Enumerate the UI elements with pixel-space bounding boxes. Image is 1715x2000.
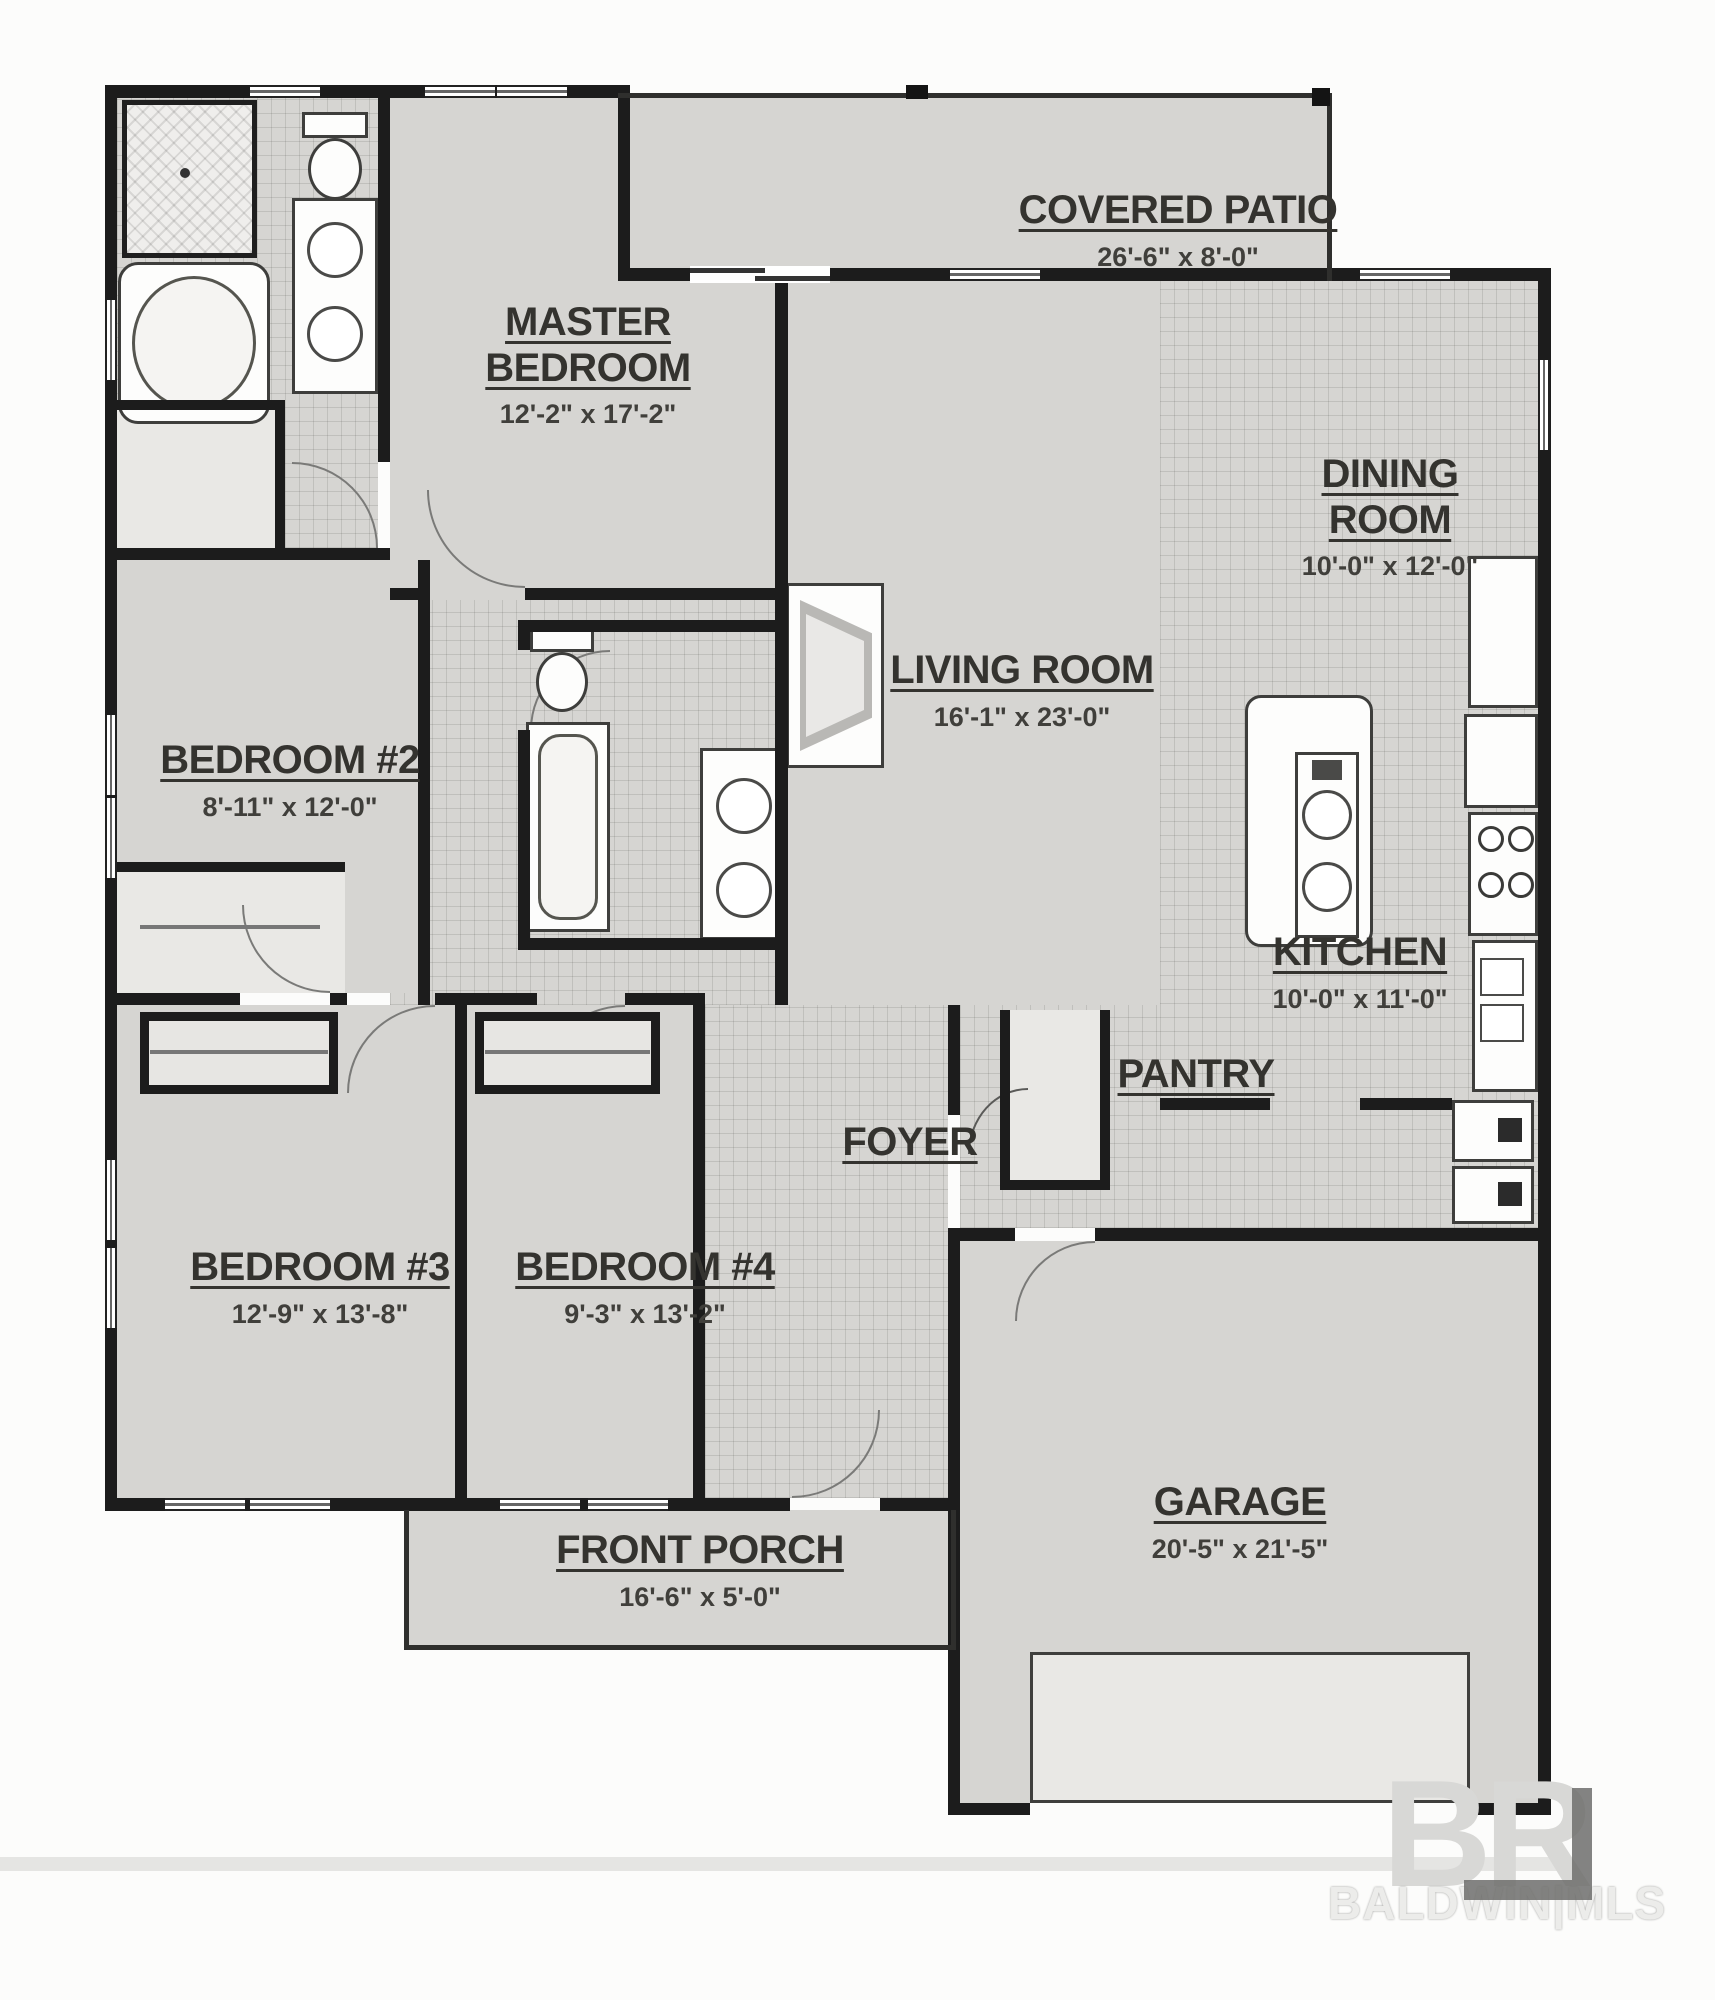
cooktop-burner — [1508, 826, 1534, 852]
fixture-toilet-bowl-master — [308, 138, 362, 200]
shower-drain — [180, 168, 190, 178]
wall-foyer-bottom-right — [880, 1498, 960, 1511]
room-dim: 8'-11" x 12'-0" — [80, 792, 500, 823]
window — [497, 85, 567, 98]
label-dining-room: DINING ROOM 10'-0" x 12'-0" — [1293, 452, 1488, 582]
room-dim: 16'-6" x 5'-0" — [490, 1582, 910, 1613]
wall-hallbath-left-b — [518, 730, 530, 950]
wall-bedrow-a — [105, 993, 240, 1005]
wall-bedrow-b — [330, 993, 347, 1005]
cooktop-burner — [1478, 826, 1504, 852]
label-pantry: PANTRY — [1066, 1052, 1326, 1098]
fixture-sink — [307, 306, 363, 362]
wall-master-bath-divide — [378, 85, 390, 462]
window — [105, 300, 117, 380]
window — [250, 85, 320, 98]
wall-master-closet-top — [112, 400, 285, 410]
label-bedroom2: BEDROOM #2 8'-11" x 12'-0" — [80, 738, 500, 823]
window — [105, 1160, 117, 1240]
window — [500, 1498, 580, 1511]
label-living-room: LIVING ROOM 16'-1" x 23'-0" — [812, 648, 1232, 733]
wall-hallbath-top — [518, 620, 788, 632]
room-master-closet — [117, 410, 275, 548]
wall-kitchen-bottom-a — [1160, 1098, 1270, 1110]
patio-slider-panel — [755, 276, 830, 281]
porch-edge-bottom — [404, 1645, 956, 1650]
wall-kitchen-bottom-b — [1360, 1098, 1452, 1110]
closet-rod — [485, 1050, 650, 1054]
room-dim: 12'-2" x 17'-2" — [471, 399, 706, 430]
label-foyer: FOYER — [790, 1120, 1030, 1166]
wall-hallbath-bottom — [518, 938, 788, 950]
fixture-shower — [122, 100, 257, 258]
window — [250, 1498, 330, 1511]
window — [1538, 360, 1550, 450]
closet-rod — [150, 1050, 328, 1054]
fixture-island-basin — [1302, 862, 1352, 912]
patio-slider-panel — [690, 268, 765, 273]
bathtub-inner — [538, 734, 598, 920]
fixture-sink — [716, 862, 772, 918]
room-dim: 9'-3" x 13'-2" — [435, 1299, 855, 1330]
room-name: PANTRY — [1118, 1052, 1275, 1096]
room-name: FRONT PORCH — [556, 1528, 844, 1572]
wall-pantry-right — [1100, 1010, 1110, 1190]
fixture-refrigerator — [1464, 714, 1538, 808]
patio-column — [1312, 88, 1330, 106]
cooktop-burner — [1508, 872, 1534, 898]
wall-master-closet-right — [275, 400, 285, 558]
label-kitchen: KITCHEN 10'-0" x 11'-0" — [1200, 930, 1520, 1015]
room-dim: 20'-5" x 21'-5" — [1080, 1534, 1400, 1565]
fixture-toilet-tank-master — [302, 112, 368, 138]
porch-edge-right — [951, 1510, 956, 1650]
window — [425, 85, 495, 98]
label-bedroom4: BEDROOM #4 9'-3" x 13'-2" — [435, 1245, 855, 1330]
wall-bedrow-d — [625, 993, 705, 1005]
room-name: MASTER BEDROOM — [485, 300, 690, 390]
page-bottom-edge — [0, 1857, 1570, 1871]
room-name: BEDROOM #2 — [160, 738, 420, 782]
closet-slider — [140, 925, 320, 929]
room-name: COVERED PATIO — [1019, 188, 1338, 232]
island-faucet — [1312, 760, 1342, 780]
wall-garage-bottom-left — [948, 1803, 1030, 1815]
wall-bath-bottom — [105, 548, 390, 560]
window — [165, 1498, 245, 1511]
floor-plan: COVERED PATIO 26'-6" x 8'-0" MASTER BEDR… — [0, 0, 1715, 2000]
room-dim: 10'-0" x 11'-0" — [1200, 984, 1520, 1015]
wall-bd2-closet-top — [115, 862, 345, 872]
window — [588, 1498, 668, 1511]
dryer-knob — [1498, 1182, 1522, 1206]
label-master-bedroom: MASTER BEDROOM 12'-2" x 17'-2" — [471, 300, 706, 430]
wall-patio-left — [618, 85, 630, 281]
room-name: KITCHEN — [1273, 930, 1447, 974]
fixture-sink — [307, 222, 363, 278]
cooktop-burner — [1478, 872, 1504, 898]
wall-foyer-bottom-left — [705, 1498, 790, 1511]
room-name: LIVING ROOM — [890, 648, 1153, 692]
washer-knob — [1498, 1118, 1522, 1142]
label-covered-patio: COVERED PATIO 26'-6" x 8'-0" — [968, 188, 1388, 273]
room-name: FOYER — [842, 1120, 977, 1164]
patio-edge-top — [618, 93, 1332, 98]
wall-bedrow-c — [435, 993, 537, 1005]
room-dim: 26'-6" x 8'-0" — [968, 242, 1388, 273]
room-name: BEDROOM #3 — [190, 1245, 450, 1289]
wall-garage-top-right — [1095, 1228, 1550, 1241]
room-dim: 16'-1" x 23'-0" — [812, 702, 1232, 733]
wall-living-left — [775, 268, 788, 1005]
room-name: GARAGE — [1154, 1480, 1327, 1524]
garden-tub-oval — [132, 276, 256, 410]
room-name: DINING ROOM — [1322, 452, 1459, 542]
baldwin-mls-logo-bracket — [1464, 1788, 1592, 1900]
wall-master-bottom-b — [525, 588, 788, 600]
fixture-sink — [716, 778, 772, 834]
fixture-toilet-bowl-hall — [536, 652, 588, 712]
room-name: BEDROOM #4 — [515, 1245, 775, 1289]
fixture-island-basin — [1302, 790, 1352, 840]
label-garage: GARAGE 20'-5" x 21'-5" — [1080, 1480, 1400, 1565]
room-master-bedroom-upper — [390, 98, 618, 281]
wall-foyer-right — [948, 1005, 960, 1115]
wall-pantry-bottom — [1000, 1180, 1110, 1190]
room-dim: 10'-0" x 12'-0" — [1293, 551, 1488, 582]
patio-column — [906, 85, 928, 99]
wall-right — [1538, 268, 1551, 1815]
label-front-porch: FRONT PORCH 16'-6" x 5'-0" — [490, 1528, 910, 1613]
porch-edge-left — [404, 1510, 409, 1650]
